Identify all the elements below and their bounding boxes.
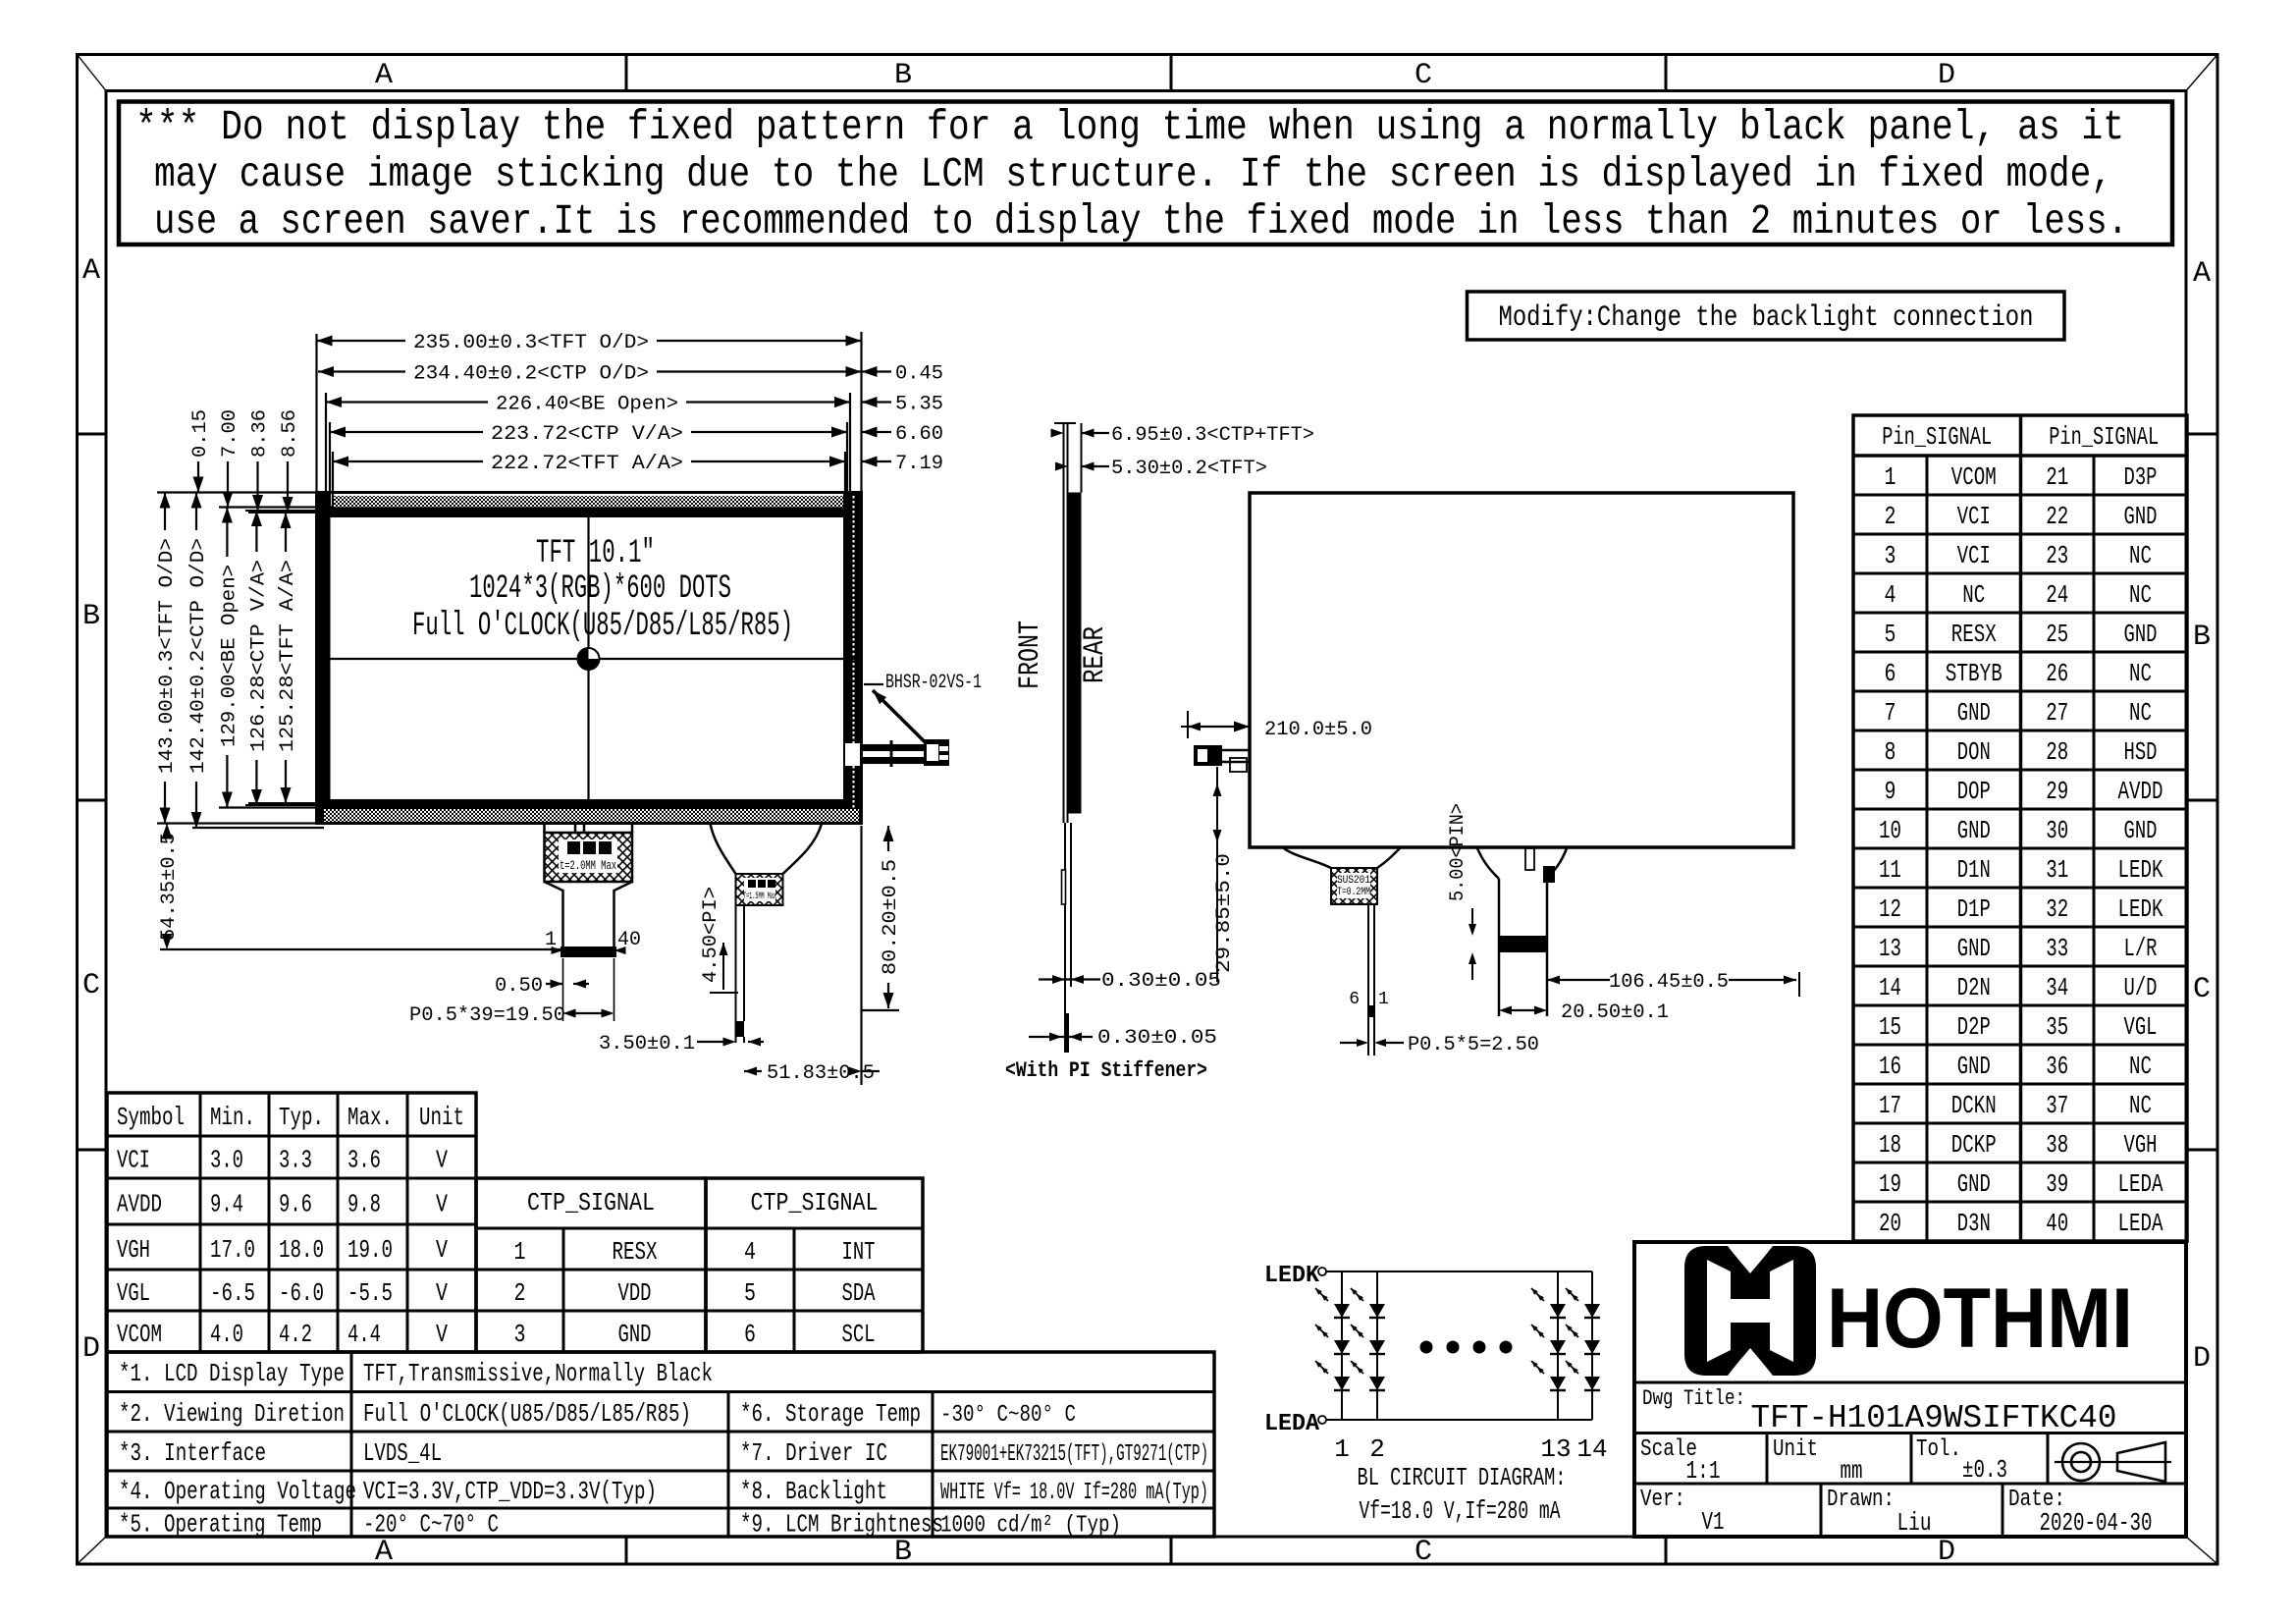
svg-text:30: 30 <box>2046 816 2068 845</box>
svg-text:-20° C~70° C: -20° C~70° C <box>363 1510 499 1540</box>
svg-text:31: 31 <box>2046 855 2068 885</box>
svg-text:SDA: SDA <box>842 1278 876 1308</box>
svg-text:*8. Backlight: *8. Backlight <box>740 1477 887 1506</box>
svg-text:VGH: VGH <box>2124 1130 2158 1160</box>
svg-text:2: 2 <box>1885 502 1896 531</box>
svg-text:Min.: Min. <box>210 1103 255 1132</box>
svg-text:6: 6 <box>744 1320 756 1349</box>
svg-text:223.72<CTP V/A>: 223.72<CTP V/A> <box>491 423 683 446</box>
svg-text:D: D <box>1938 59 1955 92</box>
svg-text:GND: GND <box>1957 816 1991 845</box>
svg-text:27: 27 <box>2046 698 2068 728</box>
svg-text:t=2.0MM Max: t=2.0MM Max <box>560 858 616 873</box>
svg-text:AVDD: AVDD <box>117 1190 162 1219</box>
svg-text:3.0: 3.0 <box>210 1146 243 1175</box>
svg-text:GND: GND <box>1957 934 1991 963</box>
svg-text:9.4: 9.4 <box>210 1190 243 1219</box>
svg-text:125.28<TFT A/A>: 125.28<TFT A/A> <box>277 560 299 752</box>
svg-text:11: 11 <box>1879 855 1901 885</box>
svg-text:VCOM: VCOM <box>117 1320 162 1349</box>
svg-text:234.40±0.2<CTP O/D>: 234.40±0.2<CTP O/D> <box>413 363 649 386</box>
svg-text:21: 21 <box>2046 462 2068 492</box>
svg-text:1:1: 1:1 <box>1686 1456 1721 1486</box>
svg-text:Full O'CLOCK(U85/D85/L85/R85): Full O'CLOCK(U85/D85/L85/R85) <box>363 1399 691 1429</box>
svg-text:*4. Operating Voltage: *4. Operating Voltage <box>119 1477 356 1506</box>
svg-text:C: C <box>82 969 100 1002</box>
svg-text:8: 8 <box>1885 737 1896 767</box>
svg-text:Liu: Liu <box>1897 1508 1932 1538</box>
svg-text:Symbol: Symbol <box>117 1103 185 1132</box>
svg-text:*5. Operating Temp: *5. Operating Temp <box>119 1510 322 1540</box>
svg-text:D: D <box>82 1332 100 1366</box>
svg-text:GND: GND <box>2124 620 2158 649</box>
svg-text:16: 16 <box>1879 1052 1901 1081</box>
svg-text:7.00: 7.00 <box>219 409 241 458</box>
svg-text:B: B <box>894 59 912 92</box>
svg-text:1024*3(RGB)*600 DOTS: 1024*3(RGB)*600 DOTS <box>469 570 731 608</box>
svg-text:*9. LCM Brightness: *9. LCM Brightness <box>740 1510 943 1540</box>
svg-text:A: A <box>375 59 393 92</box>
svg-text:D3P: D3P <box>2124 462 2158 492</box>
svg-text:1: 1 <box>514 1237 526 1267</box>
svg-text:TFT-H101A9WSIFTKC40: TFT-H101A9WSIFTKC40 <box>1751 1400 2117 1436</box>
svg-text:7.19: 7.19 <box>895 453 943 475</box>
svg-text:SUS201: SUS201 <box>1337 875 1370 887</box>
svg-text:D1P: D1P <box>1957 894 1991 924</box>
svg-text:GND: GND <box>1957 698 1991 728</box>
svg-text:5: 5 <box>1885 620 1896 649</box>
svg-text:6.60: 6.60 <box>895 423 943 446</box>
svg-text:210.0±5.0: 210.0±5.0 <box>1264 719 1372 741</box>
svg-text:40: 40 <box>617 929 641 951</box>
svg-text:0.45: 0.45 <box>895 363 943 386</box>
svg-text:35: 35 <box>2046 1012 2068 1042</box>
svg-text:V: V <box>436 1190 448 1219</box>
svg-text:17.0: 17.0 <box>210 1235 255 1265</box>
svg-text:A: A <box>2193 257 2211 291</box>
svg-text:129.00<BE Open>: 129.00<BE Open> <box>218 565 240 747</box>
svg-text:8.56: 8.56 <box>279 409 301 458</box>
svg-text:54.35±0.5: 54.35±0.5 <box>158 833 181 941</box>
svg-text:LEDK: LEDK <box>2118 855 2163 885</box>
svg-text:33: 33 <box>2046 934 2068 963</box>
svg-text:VCOM: VCOM <box>1951 462 1997 492</box>
svg-text:LEDK: LEDK <box>1264 1263 1320 1289</box>
svg-text:1: 1 <box>1378 990 1389 1009</box>
svg-text:V: V <box>436 1146 448 1175</box>
svg-text:32: 32 <box>2046 894 2068 924</box>
svg-text:GND: GND <box>2124 502 2158 531</box>
svg-text:D2P: D2P <box>1957 1012 1991 1042</box>
svg-text:222.72<TFT A/A>: 222.72<TFT A/A> <box>491 453 683 475</box>
svg-text:29: 29 <box>2046 777 2068 806</box>
svg-text:U/D: U/D <box>2124 973 2158 1002</box>
svg-text:19.0: 19.0 <box>347 1235 393 1265</box>
svg-text:13: 13 <box>1879 934 1901 963</box>
svg-text:EK79001+EK73215(TFT),GT9271(CT: EK79001+EK73215(TFT),GT9271(CTP) <box>940 1441 1208 1468</box>
svg-text:LEDA: LEDA <box>1264 1411 1320 1437</box>
svg-text:14: 14 <box>1879 973 1901 1002</box>
svg-text:23: 23 <box>2046 541 2068 570</box>
svg-text:mm: mm <box>1841 1456 1863 1486</box>
svg-text:VCI: VCI <box>1957 541 1991 570</box>
svg-text:*1. LCD Display Type: *1. LCD Display Type <box>119 1359 345 1388</box>
svg-text:SCL: SCL <box>842 1320 876 1349</box>
svg-text:L/R: L/R <box>2124 934 2158 963</box>
svg-text:CTP_SIGNAL: CTP_SIGNAL <box>527 1188 655 1217</box>
svg-text:Typ.: Typ. <box>279 1103 324 1132</box>
svg-text:2020-04-30: 2020-04-30 <box>2040 1508 2153 1538</box>
svg-text:1: 1 <box>1334 1434 1350 1464</box>
svg-text:WHITE Vf= 18.0V If=280 mA(Typ): WHITE Vf= 18.0V If=280 mA(Typ) <box>940 1480 1208 1506</box>
svg-text:B: B <box>82 600 100 633</box>
svg-text:DOP: DOP <box>1957 777 1991 806</box>
svg-text:18: 18 <box>1879 1130 1901 1160</box>
svg-text:Unit: Unit <box>419 1103 464 1132</box>
svg-text:22: 22 <box>2046 502 2068 531</box>
svg-text:V: V <box>436 1235 448 1265</box>
svg-text:24: 24 <box>2046 580 2068 610</box>
svg-text:4.2: 4.2 <box>279 1320 312 1349</box>
svg-text:20: 20 <box>1879 1209 1901 1238</box>
svg-text:CTP_SIGNAL: CTP_SIGNAL <box>751 1188 879 1217</box>
svg-text:40: 40 <box>2046 1209 2068 1238</box>
svg-text:3.50±0.1: 3.50±0.1 <box>599 1033 695 1055</box>
svg-text:10: 10 <box>1879 816 1901 845</box>
svg-text:*6. Storage Temp: *6. Storage Temp <box>740 1399 921 1429</box>
svg-text:NC: NC <box>1962 580 1985 610</box>
svg-text:3: 3 <box>1885 541 1896 570</box>
svg-text:LEDA: LEDA <box>2118 1169 2163 1199</box>
svg-text:P0.5*39=19.50: P0.5*39=19.50 <box>409 1004 565 1027</box>
svg-text:38: 38 <box>2046 1130 2068 1160</box>
svg-text:0.30±0.05: 0.30±0.05 <box>1097 1027 1217 1050</box>
svg-text:-30° C~80° C: -30° C~80° C <box>940 1402 1076 1429</box>
svg-text:VCI: VCI <box>1957 502 1991 531</box>
svg-text:17: 17 <box>1879 1091 1901 1120</box>
svg-text:13: 13 <box>1540 1434 1571 1464</box>
svg-text:143.00±0.3<TFT O/D>: 143.00±0.3<TFT O/D> <box>156 538 179 774</box>
svg-text:*** Do not display the fixed p: *** Do not display the fixed pattern for… <box>135 103 2124 151</box>
svg-text:C: C <box>1415 59 1432 92</box>
svg-text:19: 19 <box>1879 1169 1901 1199</box>
svg-text:-5.5: -5.5 <box>347 1278 393 1308</box>
svg-text:GND: GND <box>1957 1169 1991 1199</box>
svg-text:NC: NC <box>2129 541 2152 570</box>
svg-text:2: 2 <box>514 1278 526 1308</box>
svg-text:VGH: VGH <box>117 1235 150 1265</box>
svg-text:P0.5*5=2.50: P0.5*5=2.50 <box>1408 1034 1539 1056</box>
svg-text:37: 37 <box>2046 1091 2068 1120</box>
svg-text:4.0: 4.0 <box>210 1320 243 1349</box>
svg-text:T=0.2MM: T=0.2MM <box>1337 887 1370 898</box>
svg-text:3: 3 <box>514 1320 526 1349</box>
svg-text:0.15: 0.15 <box>189 409 212 458</box>
svg-text:4: 4 <box>744 1237 756 1267</box>
svg-text:D3N: D3N <box>1957 1209 1991 1238</box>
svg-text:GND: GND <box>618 1320 652 1349</box>
svg-text:1000 cd/m² (Typ): 1000 cd/m² (Typ) <box>940 1513 1121 1540</box>
svg-text:V: V <box>436 1278 448 1308</box>
svg-text:NC: NC <box>2129 1052 2152 1081</box>
svg-text:T=1.5MM Max: T=1.5MM Max <box>743 892 776 902</box>
svg-text:VCI=3.3V,CTP_VDD=3.3V(Typ): VCI=3.3V,CTP_VDD=3.3V(Typ) <box>363 1477 657 1506</box>
svg-text:14: 14 <box>1576 1434 1607 1464</box>
svg-text:NC: NC <box>2129 580 2152 610</box>
svg-text:36: 36 <box>2046 1052 2068 1081</box>
svg-text:106.45±0.5: 106.45±0.5 <box>1609 971 1729 994</box>
svg-text:Dwg Title:: Dwg Title: <box>1642 1386 1745 1411</box>
svg-text:BHSR-02VS-1: BHSR-02VS-1 <box>885 672 982 694</box>
svg-text:TFT,Transmissive,Normally Blac: TFT,Transmissive,Normally Black <box>363 1359 713 1388</box>
svg-text:15: 15 <box>1879 1012 1901 1042</box>
svg-text:REAR: REAR <box>1079 626 1112 683</box>
svg-text:D: D <box>2193 1342 2211 1376</box>
svg-text:DCKN: DCKN <box>1951 1091 1997 1120</box>
svg-text:5.00<PIN>: 5.00<PIN> <box>1447 803 1469 901</box>
svg-text:NC: NC <box>2129 698 2152 728</box>
svg-text:may cause image sticking due t: may cause image sticking due to the LCM … <box>154 150 2112 198</box>
svg-text:V: V <box>436 1320 448 1349</box>
svg-text:18.0: 18.0 <box>279 1235 324 1265</box>
svg-text:80.20±0.5: 80.20±0.5 <box>880 859 902 975</box>
svg-text:28: 28 <box>2046 737 2068 767</box>
svg-text:3.3: 3.3 <box>279 1146 312 1175</box>
svg-text:Drawn:: Drawn: <box>1827 1487 1895 1513</box>
svg-text:142.40±0.2<CTP O/D>: 142.40±0.2<CTP O/D> <box>187 538 210 774</box>
svg-text:6: 6 <box>1349 990 1360 1009</box>
svg-text:5: 5 <box>744 1278 756 1308</box>
svg-text:VGL: VGL <box>2124 1012 2158 1042</box>
svg-text:<With PI Stiffener>: <With PI Stiffener> <box>1005 1058 1207 1083</box>
svg-text:Ver:: Ver: <box>1640 1487 1685 1513</box>
svg-text:9: 9 <box>1885 777 1896 806</box>
svg-text:B: B <box>894 1536 912 1569</box>
svg-text:use a screen saver.It is recom: use a screen saver.It is recommended to … <box>154 197 2128 245</box>
svg-text:20.50±0.1: 20.50±0.1 <box>1561 1001 1669 1024</box>
svg-text:AVDD: AVDD <box>2118 777 2163 806</box>
svg-text:Max.: Max. <box>347 1103 393 1132</box>
svg-text:2: 2 <box>1369 1434 1385 1464</box>
svg-text:C: C <box>2193 973 2211 1006</box>
svg-text:GND: GND <box>1957 1052 1991 1081</box>
svg-text:Full O'CLOCK(U85/D85/L85/R85): Full O'CLOCK(U85/D85/L85/R85) <box>412 608 793 645</box>
svg-text:BL CIRCUIT DIAGRAM:: BL CIRCUIT DIAGRAM: <box>1358 1463 1567 1492</box>
svg-text:9.8: 9.8 <box>347 1190 381 1219</box>
svg-text:235.00±0.3<TFT O/D>: 235.00±0.3<TFT O/D> <box>413 332 649 354</box>
svg-text:LEDA: LEDA <box>2118 1209 2163 1238</box>
svg-text:4: 4 <box>1885 580 1896 610</box>
svg-text:INT: INT <box>842 1237 876 1267</box>
svg-text:NC: NC <box>2129 1091 2152 1120</box>
svg-text:51.83±0.5: 51.83±0.5 <box>767 1062 875 1085</box>
svg-text:0.30±0.05: 0.30±0.05 <box>1101 970 1221 993</box>
svg-text:*3. Interface: *3. Interface <box>119 1438 266 1468</box>
svg-text:6: 6 <box>1885 659 1896 688</box>
svg-text:B: B <box>2193 621 2211 654</box>
svg-text:Pin_SIGNAL: Pin_SIGNAL <box>1882 422 1992 452</box>
svg-text:RESX: RESX <box>613 1237 658 1267</box>
svg-text:HOTHMI: HOTHMI <box>1827 1271 2133 1366</box>
svg-text:GND: GND <box>2124 816 2158 845</box>
svg-text:HSD: HSD <box>2124 737 2158 767</box>
svg-text:±0.3: ±0.3 <box>1962 1455 2007 1485</box>
svg-text:9.6: 9.6 <box>279 1190 312 1219</box>
svg-text:34: 34 <box>2046 973 2068 1002</box>
svg-text:8.36: 8.36 <box>249 409 272 458</box>
svg-text:TFT 10.1″: TFT 10.1″ <box>536 535 655 572</box>
svg-text:Vf=18.0 V,If=280 mA: Vf=18.0 V,If=280 mA <box>1360 1496 1561 1526</box>
svg-text:A: A <box>375 1536 393 1569</box>
svg-text:1: 1 <box>1885 462 1896 492</box>
svg-text:A: A <box>82 254 100 288</box>
svg-text:VDD: VDD <box>618 1278 652 1308</box>
svg-text:25: 25 <box>2046 620 2068 649</box>
svg-text:12: 12 <box>1879 894 1901 924</box>
svg-text:Tol.: Tol. <box>1916 1436 1961 1463</box>
svg-text:D2N: D2N <box>1957 973 1991 1002</box>
svg-text:5.35: 5.35 <box>895 394 943 416</box>
svg-text:4.4: 4.4 <box>347 1320 381 1349</box>
svg-text:39: 39 <box>2046 1169 2068 1199</box>
svg-text:DON: DON <box>1957 737 1991 767</box>
svg-text:D1N: D1N <box>1957 855 1991 885</box>
svg-text:LEDK: LEDK <box>2118 894 2163 924</box>
svg-text:STBYB: STBYB <box>1946 659 2002 688</box>
svg-text:Pin_SIGNAL: Pin_SIGNAL <box>2049 422 2159 452</box>
svg-text:5.30±0.2<TFT>: 5.30±0.2<TFT> <box>1111 458 1267 480</box>
svg-text:6.95±0.3<CTP+TFT>: 6.95±0.3<CTP+TFT> <box>1111 424 1314 447</box>
svg-text:4.50<PI>: 4.50<PI> <box>700 887 722 983</box>
svg-text:RESX: RESX <box>1951 620 1997 649</box>
svg-text:226.40<BE Open>: 226.40<BE Open> <box>496 394 678 416</box>
svg-text:3.6: 3.6 <box>347 1146 381 1175</box>
svg-text:126.28<CTP V/A>: 126.28<CTP V/A> <box>247 560 270 752</box>
svg-text:VCI: VCI <box>117 1146 150 1175</box>
svg-text:-6.0: -6.0 <box>279 1278 324 1308</box>
svg-text:Unit: Unit <box>1773 1436 1818 1463</box>
svg-text:*7. Driver IC: *7. Driver IC <box>740 1438 887 1468</box>
svg-text:29.85±5.0: 29.85±5.0 <box>1213 853 1236 973</box>
svg-text:DCKP: DCKP <box>1951 1130 1997 1160</box>
svg-text:NC: NC <box>2129 659 2152 688</box>
svg-text:V1: V1 <box>1702 1507 1725 1537</box>
svg-text:*2. Viewing Diretion: *2. Viewing Diretion <box>119 1399 345 1429</box>
svg-text:-6.5: -6.5 <box>210 1278 255 1308</box>
svg-text:Modify:Change the backlight co: Modify:Change the backlight connection <box>1499 301 2034 335</box>
svg-text:7: 7 <box>1885 698 1896 728</box>
svg-text:D: D <box>1938 1536 1955 1569</box>
svg-text:C: C <box>1415 1536 1432 1569</box>
svg-text:VGL: VGL <box>117 1278 150 1308</box>
svg-text:26: 26 <box>2046 659 2068 688</box>
svg-text:0.50: 0.50 <box>495 975 543 998</box>
svg-text:FRONT: FRONT <box>1014 621 1047 689</box>
svg-text:LVDS_4L: LVDS_4L <box>363 1438 442 1468</box>
